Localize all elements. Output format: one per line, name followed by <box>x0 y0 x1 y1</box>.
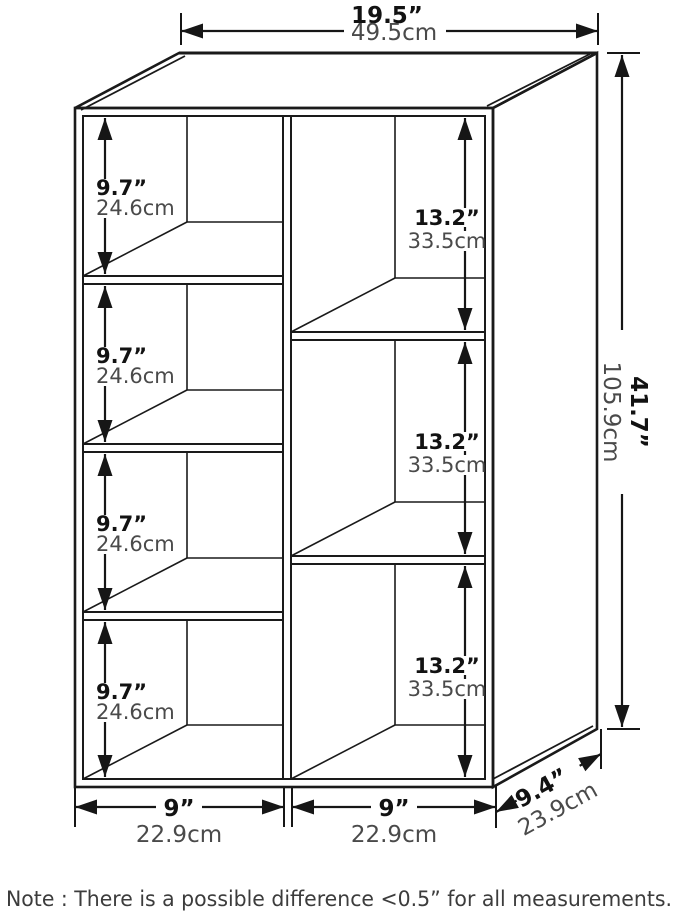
right-column-cm-label: 22.9cm <box>351 822 437 848</box>
top-panel-right-inner-edge <box>487 54 590 106</box>
cubby-cm-label: 33.5cm <box>408 677 487 701</box>
dimension-right-cubby-2: 13.2” 33.5cm <box>407 342 486 554</box>
cubby-depth-diagonal <box>291 502 395 556</box>
dimension-left-column-width: 9” 22.9cm <box>75 788 284 848</box>
dimension-overall-width: 19.5” 49.5cm <box>181 3 598 46</box>
left-column-cm-label: 22.9cm <box>136 822 222 848</box>
depth-label-group: 9.4” 23.9cm <box>500 752 602 842</box>
dimension-left-cubby-1: 9.7” 24.6cm <box>94 118 175 274</box>
cubby-inches-label: 13.2” <box>414 430 480 454</box>
top-panel <box>75 53 597 108</box>
dimension-right-cubby-1: 13.2” 33.5cm <box>407 118 486 330</box>
cubby-depth-diagonal <box>291 725 395 779</box>
height-cm-label: 105.9cm <box>598 362 624 463</box>
cubby-depth-diagonal <box>83 725 187 779</box>
side-panel <box>493 53 597 787</box>
left-column-inches-label: 9” <box>163 796 194 822</box>
cubby-cm-label: 24.6cm <box>96 364 175 388</box>
cubby-cm-label: 24.6cm <box>96 532 175 556</box>
cubby-depth-diagonal <box>83 558 187 612</box>
cubby-cm-label: 33.5cm <box>408 453 487 477</box>
cabinet-structure <box>75 53 597 787</box>
top-panel-left-inner-edge <box>81 56 185 110</box>
cubby-cm-label: 33.5cm <box>408 229 487 253</box>
cubby-cm-label: 24.6cm <box>96 196 175 220</box>
dimension-right-column-width: 9” 22.9cm <box>292 788 496 848</box>
bookcase-dimension-drawing: 19.5” 49.5cm 41.7” 105.9cm 9.4” 23.9cm 9… <box>0 0 679 916</box>
dimension-right-cubby-3: 13.2” 33.5cm <box>407 566 486 777</box>
measurement-note: Note : There is a possible difference <0… <box>6 887 672 911</box>
right-column-inches-label: 9” <box>378 796 409 822</box>
dimension-depth: 9.4” 23.9cm <box>496 729 602 842</box>
cubby-cm-label: 24.6cm <box>96 700 175 724</box>
height-label-group: 41.7” 105.9cm <box>598 330 651 494</box>
cubby-inches-label: 13.2” <box>414 206 480 230</box>
height-inches-label: 41.7” <box>625 376 651 448</box>
dimension-left-cubby-4: 9.7” 24.6cm <box>94 622 175 777</box>
cubby-depth-diagonal <box>291 278 395 332</box>
cubby-depth-diagonal <box>83 222 187 276</box>
product-dimension-diagram: 19.5” 49.5cm 41.7” 105.9cm 9.4” 23.9cm 9… <box>0 0 679 916</box>
dimension-overall-height: 41.7” 105.9cm <box>598 53 651 729</box>
cubby-depth-diagonal <box>83 390 187 444</box>
dimension-left-cubby-3: 9.7” 24.6cm <box>94 454 175 610</box>
dimension-left-cubby-2: 9.7” 24.6cm <box>94 286 175 442</box>
width-cm-label: 49.5cm <box>351 20 437 46</box>
cubby-inches-label: 13.2” <box>414 654 480 678</box>
